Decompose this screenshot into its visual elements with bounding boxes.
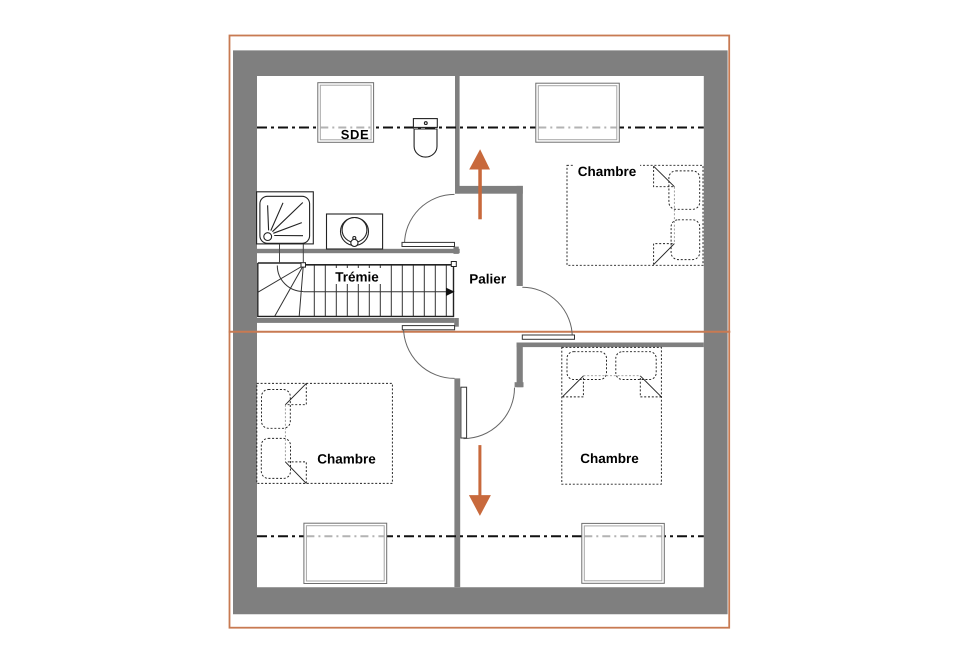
svg-text:Chambre: Chambre: [580, 451, 639, 466]
svg-text:Chambre: Chambre: [578, 164, 637, 179]
svg-text:Trémie: Trémie: [335, 270, 379, 285]
svg-text:SDE: SDE: [341, 127, 370, 142]
svg-text:Chambre: Chambre: [317, 452, 376, 467]
svg-text:Palier: Palier: [469, 272, 507, 287]
